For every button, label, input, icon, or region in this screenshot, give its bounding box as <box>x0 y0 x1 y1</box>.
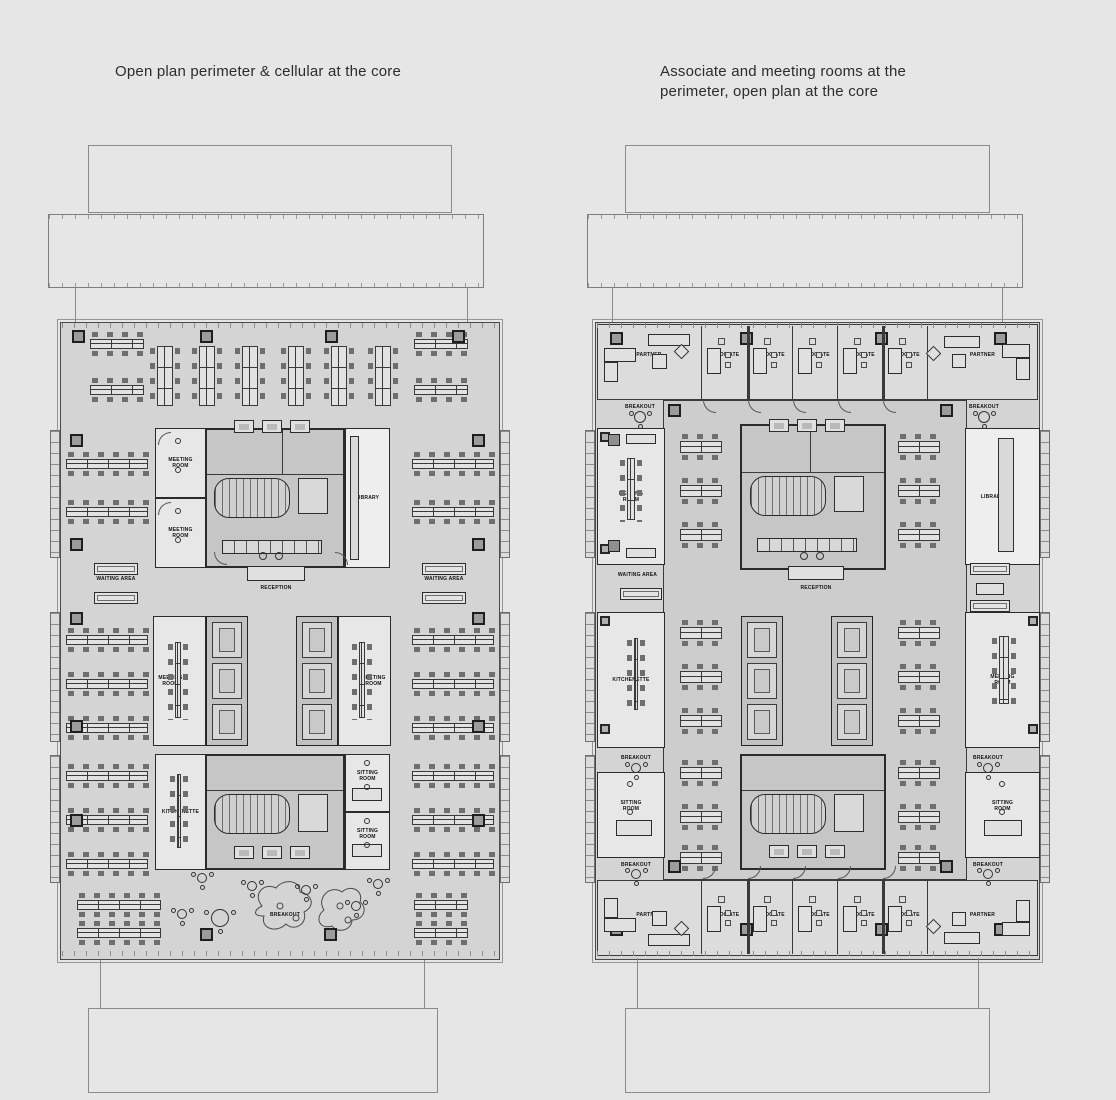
core-partition <box>282 430 283 474</box>
chair <box>816 910 822 916</box>
desk <box>976 583 1004 595</box>
core-partition <box>207 474 343 475</box>
chair <box>816 920 822 926</box>
office-desk <box>707 348 721 374</box>
desk-bench <box>64 500 150 524</box>
desk-bench <box>896 760 942 786</box>
desk-bench <box>410 764 496 788</box>
office-desk <box>888 906 902 932</box>
chair <box>364 784 370 790</box>
column <box>472 720 485 733</box>
chair <box>209 872 214 877</box>
desk-bench <box>412 893 470 917</box>
chair <box>364 760 370 766</box>
column <box>452 330 465 343</box>
chair <box>977 868 982 873</box>
connector-line <box>100 960 101 1008</box>
service-cupboard <box>298 478 328 514</box>
partner-furniture <box>604 918 636 932</box>
chair <box>376 891 381 896</box>
partner-furniture <box>1002 344 1030 358</box>
column <box>72 330 85 343</box>
column <box>70 720 83 733</box>
printer-icon <box>234 420 254 433</box>
connector-line <box>1002 288 1003 322</box>
printer-icon <box>769 845 789 858</box>
desk-bench <box>168 640 188 720</box>
chair <box>231 910 236 915</box>
chair <box>816 552 824 560</box>
desk-bench <box>410 852 496 876</box>
desk-bench <box>324 344 354 408</box>
connector-line <box>75 288 76 322</box>
chair <box>861 920 867 926</box>
chair <box>899 338 906 345</box>
printer-icon <box>797 845 817 858</box>
chair <box>906 920 912 926</box>
elevator-bank <box>206 616 248 746</box>
chair <box>189 908 194 913</box>
desk-bench <box>170 772 188 850</box>
chair <box>999 809 1005 815</box>
chair <box>718 896 725 903</box>
desk-bench <box>678 708 724 734</box>
chair <box>367 878 372 883</box>
desk <box>247 566 305 581</box>
desk-bench <box>896 620 942 646</box>
door-arc <box>793 866 806 879</box>
office-divider <box>927 326 928 400</box>
office-divider <box>837 326 838 400</box>
desk-bench <box>150 344 180 408</box>
door-arc <box>703 400 716 413</box>
column <box>325 330 338 343</box>
facade-mullions <box>597 951 1038 956</box>
desk-bench <box>896 845 942 871</box>
door-arc <box>158 502 171 515</box>
chair <box>999 781 1005 787</box>
partner-furniture <box>652 354 667 369</box>
printer-icon <box>825 419 845 432</box>
desk-bench <box>64 852 150 876</box>
service-cupboard <box>298 794 328 832</box>
window-bay <box>585 612 595 742</box>
core-partition <box>742 472 884 473</box>
printer-icon <box>262 420 282 433</box>
breakout-table <box>247 881 257 891</box>
chair <box>800 552 808 560</box>
chair <box>643 868 648 873</box>
chair <box>200 885 205 890</box>
desk-bench <box>620 456 642 522</box>
elevator-bank <box>831 616 873 746</box>
partner-furniture <box>944 932 980 944</box>
chair <box>809 338 816 345</box>
chair <box>625 868 630 873</box>
desk-bench <box>352 640 372 720</box>
door-arc <box>748 866 761 879</box>
chair <box>218 929 223 934</box>
desk-bench <box>75 921 163 945</box>
office-desk <box>753 906 767 932</box>
desk-bench <box>896 434 942 460</box>
desk-bench <box>678 620 724 646</box>
desk-bench <box>410 452 496 476</box>
chair <box>204 910 209 915</box>
cabinet-block <box>608 540 620 552</box>
office-divider <box>927 880 928 954</box>
desk-bench <box>412 921 470 945</box>
chair <box>861 352 867 358</box>
desk <box>984 820 1022 836</box>
desk-bench <box>235 344 265 408</box>
wc-cubicles <box>757 538 857 552</box>
office-desk <box>798 348 812 374</box>
chair <box>241 880 246 885</box>
chair <box>385 878 390 883</box>
desk <box>788 566 844 580</box>
printer-icon <box>262 846 282 859</box>
chair <box>180 921 185 926</box>
service-cupboard <box>834 476 864 512</box>
chair <box>982 424 987 429</box>
breakout-table <box>978 411 990 423</box>
office-divider <box>747 326 750 400</box>
breakout-table <box>631 763 641 773</box>
office-divider <box>701 880 702 954</box>
chair <box>854 896 861 903</box>
partner-furniture <box>604 898 618 918</box>
printer-icon <box>797 419 817 432</box>
chair <box>816 352 822 358</box>
desk-bench <box>410 500 496 524</box>
chair <box>995 868 1000 873</box>
chair <box>991 411 996 416</box>
floorplan-comparison: Open plan perimeter & cellular at the co… <box>0 0 1116 1100</box>
printer-icon <box>290 420 310 433</box>
breakout-table <box>373 879 383 889</box>
chair <box>725 920 731 926</box>
window-bay <box>585 755 595 883</box>
column <box>668 404 681 417</box>
column <box>200 928 213 941</box>
office-divider <box>837 880 838 954</box>
window-bay <box>50 755 60 883</box>
column <box>70 538 83 551</box>
office-divider <box>701 326 702 400</box>
chair <box>771 362 777 368</box>
chair <box>854 338 861 345</box>
elevator-bank <box>741 616 783 746</box>
chair <box>906 362 912 368</box>
printer-icon <box>825 845 845 858</box>
breakout-table <box>211 909 229 927</box>
chair <box>725 362 731 368</box>
column <box>600 724 610 734</box>
facade-mullions <box>62 951 498 956</box>
desk-bench <box>678 478 724 504</box>
core-partition <box>207 790 343 791</box>
desk-bench <box>896 478 942 504</box>
chair <box>363 900 368 905</box>
chair <box>250 893 255 898</box>
waiting-bench <box>620 588 662 600</box>
chair <box>977 762 982 767</box>
chair <box>764 338 771 345</box>
chair <box>364 842 370 848</box>
door-arc <box>703 866 716 879</box>
door-arc <box>883 866 896 879</box>
door-arc <box>214 552 227 565</box>
partner-chair <box>926 919 942 935</box>
chair <box>259 552 267 560</box>
service-cupboard <box>998 438 1014 552</box>
partner-furniture <box>952 354 966 368</box>
plan-detail-overlay: PARTNERASSOCIATEASSOCIATEASSOCIATEASSOCI… <box>0 0 1116 1100</box>
chair <box>725 910 731 916</box>
breakout-table <box>634 411 646 423</box>
chair <box>313 884 318 889</box>
chair <box>627 781 633 787</box>
column <box>472 612 485 625</box>
breakout-table <box>351 901 361 911</box>
office-desk <box>843 348 857 374</box>
desk-bench <box>64 452 150 476</box>
desk-bench <box>64 672 150 696</box>
chair <box>861 910 867 916</box>
column <box>940 404 953 417</box>
desk-bench <box>678 664 724 690</box>
chair <box>171 908 176 913</box>
desk-bench <box>281 344 311 408</box>
desk-bench <box>678 845 724 871</box>
desk <box>626 434 656 444</box>
column <box>70 434 83 447</box>
chair <box>295 884 300 889</box>
desk-bench <box>627 636 645 712</box>
chair <box>906 910 912 916</box>
desk-bench <box>75 893 163 917</box>
desk-bench <box>88 332 146 356</box>
desk-bench <box>896 804 942 830</box>
desk-bench <box>410 628 496 652</box>
desk-bench <box>896 522 942 548</box>
chair <box>995 762 1000 767</box>
printer-icon <box>234 846 254 859</box>
window-bay <box>50 430 60 558</box>
breakout-table <box>301 885 311 895</box>
breakout-table <box>177 909 187 919</box>
staircase <box>214 478 290 518</box>
chair <box>175 537 181 543</box>
door-arc <box>838 400 851 413</box>
window-bay <box>500 755 510 883</box>
office-desk <box>707 906 721 932</box>
chair <box>861 362 867 368</box>
partner-furniture <box>1016 358 1030 380</box>
door-arc <box>793 400 806 413</box>
chair <box>771 920 777 926</box>
desk-bench <box>678 522 724 548</box>
cabinet-block <box>608 434 620 446</box>
chair <box>643 762 648 767</box>
chair <box>764 896 771 903</box>
door-arc <box>838 866 851 879</box>
desk-bench <box>64 628 150 652</box>
desk-bench <box>412 378 470 402</box>
office-desk <box>843 906 857 932</box>
column <box>200 330 213 343</box>
core-partition <box>742 790 884 791</box>
door-arc <box>883 400 896 413</box>
waiting-bench <box>94 592 138 604</box>
elevator-bank <box>296 616 338 746</box>
partner-furniture <box>1016 900 1030 922</box>
desk-bench <box>896 664 942 690</box>
door-arc <box>158 432 171 445</box>
chair <box>986 775 991 780</box>
staircase <box>214 794 290 834</box>
chair <box>175 508 181 514</box>
chair <box>345 900 350 905</box>
column <box>324 928 337 941</box>
column <box>1028 616 1038 626</box>
breakout-table <box>983 763 993 773</box>
office-desk <box>798 906 812 932</box>
window-bay <box>500 612 510 742</box>
chair <box>899 896 906 903</box>
chair <box>718 338 725 345</box>
chair <box>771 910 777 916</box>
facade-mullions <box>597 323 1038 328</box>
column <box>610 332 623 345</box>
desk-bench <box>678 760 724 786</box>
door-arc <box>335 552 348 565</box>
chair <box>986 881 991 886</box>
chair <box>364 818 370 824</box>
column <box>70 612 83 625</box>
door-arc <box>748 400 761 413</box>
chair <box>191 872 196 877</box>
column <box>668 860 681 873</box>
breakout-table <box>197 873 207 883</box>
window-bay <box>500 430 510 558</box>
chair <box>809 896 816 903</box>
chair <box>634 881 639 886</box>
office-divider <box>792 326 793 400</box>
chair <box>771 352 777 358</box>
chair <box>629 411 634 416</box>
connector-line <box>424 960 425 1008</box>
chair <box>627 809 633 815</box>
office-divider <box>882 326 885 400</box>
chair <box>638 424 643 429</box>
chair <box>354 913 359 918</box>
partner-furniture <box>1002 922 1030 936</box>
waiting-bench <box>94 563 138 575</box>
column <box>70 814 83 827</box>
connector-line <box>612 288 613 322</box>
service-cupboard <box>834 794 864 832</box>
partner-furniture <box>652 911 667 926</box>
service-cupboard <box>350 436 359 560</box>
waiting-bench <box>970 600 1010 612</box>
waiting-bench <box>422 563 466 575</box>
partner-furniture <box>648 934 690 946</box>
wc-cubicles <box>222 540 322 554</box>
window-bay <box>1040 430 1050 558</box>
column <box>472 538 485 551</box>
staircase <box>750 476 826 516</box>
chair <box>973 411 978 416</box>
partner-furniture <box>944 336 980 348</box>
partner-furniture <box>604 348 636 362</box>
office-divider <box>792 880 793 954</box>
staircase <box>750 794 826 834</box>
office-desk <box>753 348 767 374</box>
desk <box>616 820 652 836</box>
column <box>1028 724 1038 734</box>
facade-mullions <box>62 323 498 328</box>
chair <box>634 775 639 780</box>
desk-bench <box>410 672 496 696</box>
desk-bench <box>896 708 942 734</box>
desk-bench <box>992 634 1016 706</box>
desk-bench <box>64 764 150 788</box>
window-bay <box>585 430 595 558</box>
chair <box>816 362 822 368</box>
connector-line <box>467 288 468 322</box>
core-partition <box>810 428 811 472</box>
office-desk <box>888 348 902 374</box>
connector-line <box>978 958 979 1008</box>
column <box>600 616 610 626</box>
window-bay <box>1040 755 1050 883</box>
desk-bench <box>678 434 724 460</box>
chair <box>725 352 731 358</box>
partner-furniture <box>604 362 618 382</box>
breakout-table <box>983 869 993 879</box>
waiting-bench <box>970 563 1010 575</box>
breakout-table <box>631 869 641 879</box>
desk-bench <box>678 804 724 830</box>
desk-bench <box>368 344 398 408</box>
desk <box>626 548 656 558</box>
partner-furniture <box>952 912 966 926</box>
chair <box>175 438 181 444</box>
column <box>472 434 485 447</box>
chair <box>625 762 630 767</box>
chair <box>259 880 264 885</box>
chair <box>275 552 283 560</box>
column <box>940 860 953 873</box>
connector-line <box>637 958 638 1008</box>
chair <box>647 411 652 416</box>
waiting-bench <box>422 592 466 604</box>
desk-bench <box>192 344 222 408</box>
printer-icon <box>769 419 789 432</box>
chair <box>906 352 912 358</box>
column <box>472 814 485 827</box>
desk-bench <box>88 378 146 402</box>
chair <box>304 897 309 902</box>
window-bay <box>1040 612 1050 742</box>
printer-icon <box>290 846 310 859</box>
chair <box>175 467 181 473</box>
partner-chair <box>926 346 942 362</box>
partner-furniture <box>648 334 690 346</box>
window-bay <box>50 612 60 742</box>
